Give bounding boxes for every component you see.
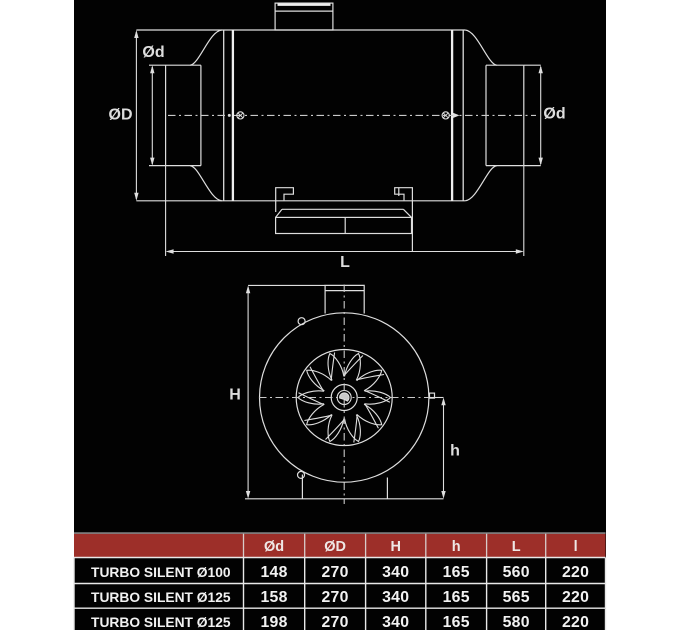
- svg-text:Ød: Ød: [142, 44, 164, 61]
- svg-text:220: 220: [562, 614, 589, 630]
- svg-text:h: h: [452, 539, 461, 555]
- svg-text:165: 165: [443, 589, 470, 606]
- svg-text:565: 565: [503, 589, 530, 606]
- svg-text:H: H: [390, 539, 400, 555]
- svg-text:H: H: [229, 387, 241, 404]
- svg-text:158: 158: [260, 589, 287, 606]
- svg-text:h: h: [450, 443, 460, 460]
- svg-text:340: 340: [382, 589, 409, 606]
- svg-text:340: 340: [382, 564, 409, 581]
- svg-text:340: 340: [382, 614, 409, 630]
- svg-text:270: 270: [321, 564, 348, 581]
- svg-text:580: 580: [503, 614, 530, 630]
- svg-text:L: L: [512, 539, 521, 555]
- svg-text:TURBO SILENT Ø125: TURBO SILENT Ø125: [91, 590, 231, 605]
- svg-text:TURBO SILENT Ø125: TURBO SILENT Ø125: [91, 615, 231, 630]
- svg-text:198: 198: [260, 614, 287, 630]
- svg-text:Ød: Ød: [264, 539, 284, 555]
- svg-text:165: 165: [443, 614, 470, 630]
- svg-text:220: 220: [562, 564, 589, 581]
- svg-text:220: 220: [562, 589, 589, 606]
- svg-text:Ød: Ød: [543, 106, 565, 123]
- svg-text:270: 270: [321, 614, 348, 630]
- svg-text:165: 165: [443, 564, 470, 581]
- svg-text:TURBO SILENT Ø100: TURBO SILENT Ø100: [91, 565, 231, 580]
- svg-text:560: 560: [503, 564, 530, 581]
- svg-text:l: l: [574, 539, 578, 555]
- svg-text:L: L: [340, 254, 350, 271]
- svg-text:ØD: ØD: [109, 107, 133, 124]
- svg-text:270: 270: [321, 589, 348, 606]
- svg-text:148: 148: [260, 564, 287, 581]
- svg-text:ØD: ØD: [324, 539, 346, 555]
